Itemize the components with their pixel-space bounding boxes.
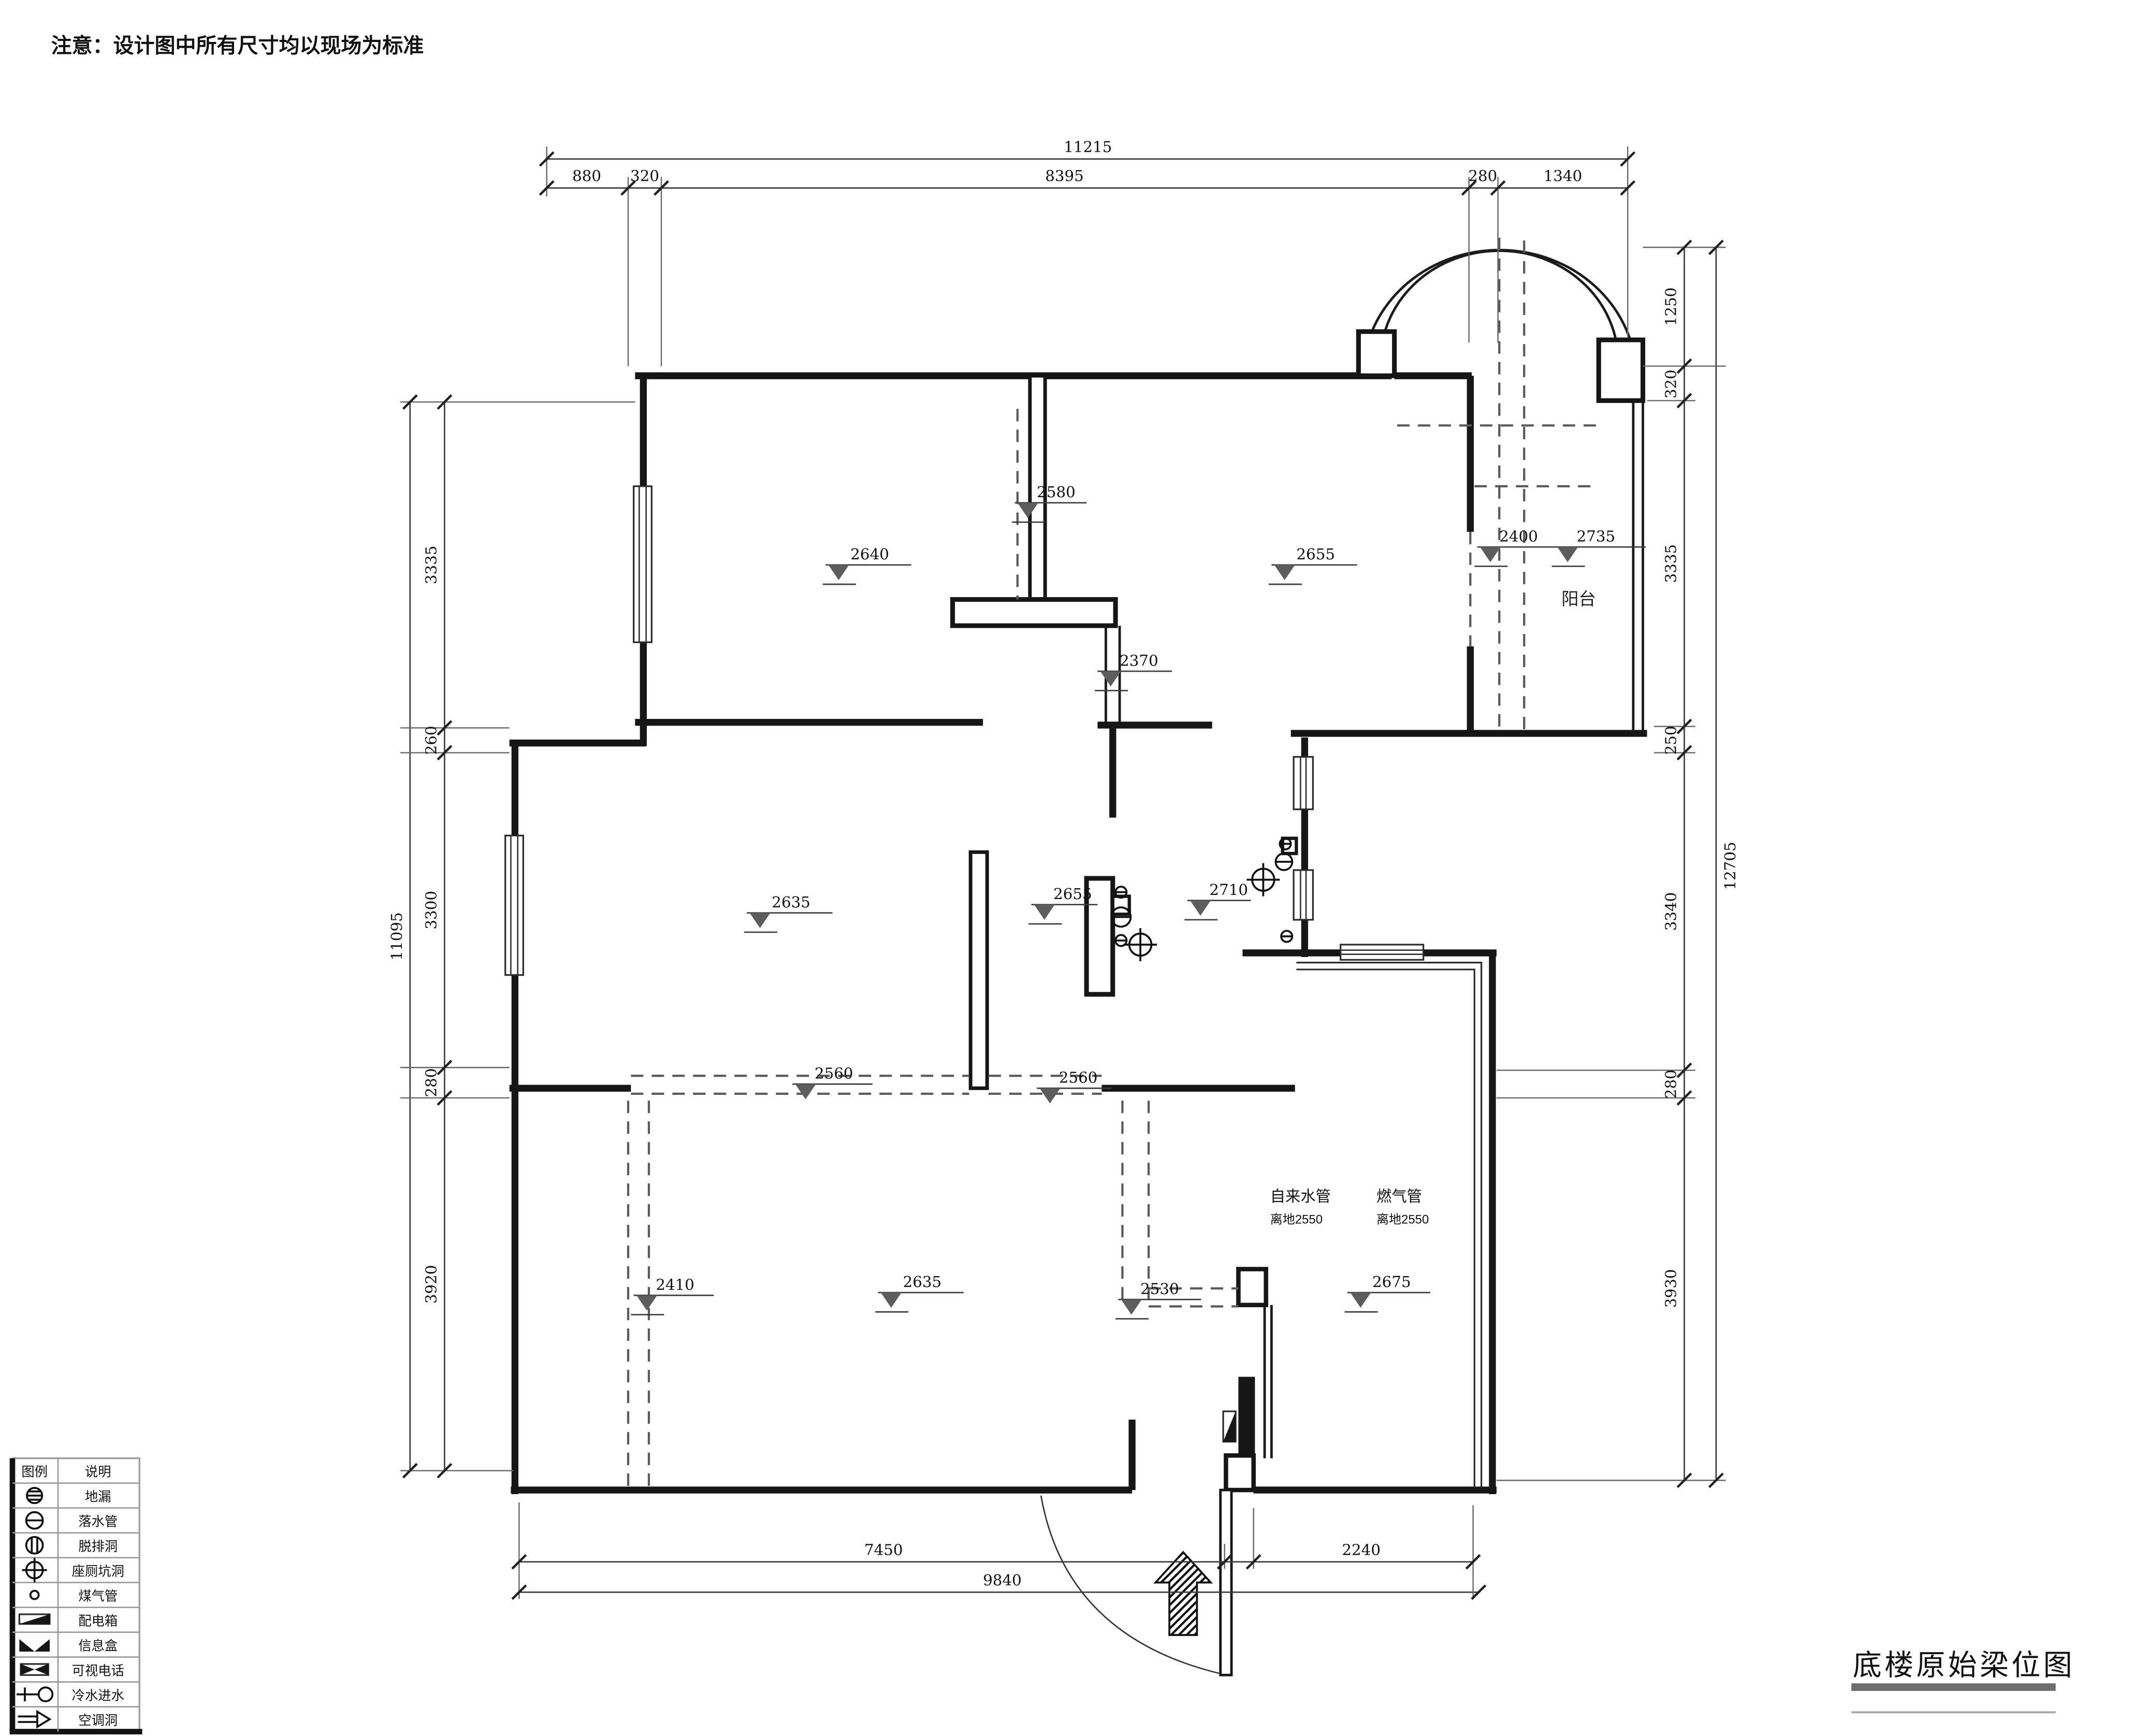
- dim-label: 320: [1662, 370, 1680, 399]
- dashed-lines: [628, 238, 1599, 1490]
- svg-text:信息盒: 信息盒: [78, 1639, 118, 1653]
- dim-label: 1340: [1544, 167, 1583, 185]
- dim-label: 3335: [1662, 544, 1680, 583]
- elevation-marker: 2735: [1552, 527, 1646, 566]
- floor-plan-canvas: 注意：设计图中所有尺寸均以现场为标准: [0, 0, 2133, 1736]
- water-pipe-label: 自来水管: [1270, 1188, 1331, 1205]
- elevation-value: 2640: [850, 545, 889, 563]
- dim-label: 280: [1468, 167, 1497, 185]
- dim-label: 8395: [1045, 167, 1084, 185]
- toilet-pit-icon: [1246, 863, 1280, 896]
- elevation-marker: 2560: [1037, 1069, 1111, 1104]
- dim-label: 1250: [1662, 287, 1680, 326]
- dim-label: 260: [422, 726, 440, 755]
- svg-text:空调洞: 空调洞: [78, 1713, 118, 1728]
- svg-text:冷水进水: 冷水进水: [72, 1688, 124, 1703]
- elevation-value: 2655: [1053, 885, 1092, 903]
- elevation-value: 2635: [903, 1273, 942, 1291]
- svg-text:可视电话: 可视电话: [72, 1663, 124, 1678]
- balcony-label: 阳台: [1561, 590, 1596, 609]
- dim-label: 11095: [388, 912, 405, 960]
- dim-label: 2240: [1342, 1541, 1381, 1558]
- elevation-value: 2580: [1037, 483, 1076, 501]
- svg-text:落水管: 落水管: [78, 1514, 118, 1529]
- entry-arrow-icon: [1155, 1552, 1211, 1635]
- dim-label: 3340: [1662, 892, 1680, 931]
- dim-label: 280: [1662, 1069, 1680, 1098]
- elevation-marker: 2635: [875, 1273, 964, 1312]
- elevation-marker: 2635: [744, 893, 833, 932]
- drawing-title: 底楼原始梁位图: [1853, 1648, 2075, 1681]
- elevation-value: 2655: [1296, 545, 1335, 563]
- window-bath-upper: [1294, 757, 1313, 809]
- elevation-value: 2400: [1499, 527, 1538, 545]
- dim-label: 320: [630, 167, 659, 185]
- elevation-marker: 2580: [1012, 483, 1086, 522]
- downpipe-icon: [1275, 853, 1292, 870]
- water-pipe-height: 离地2550: [1270, 1213, 1323, 1227]
- legend-header-symbol: 图例: [21, 1465, 48, 1479]
- elevation-marker: 2640: [823, 545, 911, 584]
- elevation-value: 2560: [1059, 1069, 1098, 1087]
- dim-label: 11215: [1064, 138, 1112, 156]
- svg-text:煤气管: 煤气管: [78, 1589, 118, 1603]
- drawing-sheet: 注意：设计图中所有尺寸均以现场为标准: [0, 0, 2133, 1736]
- dim-label: 3920: [422, 1265, 440, 1304]
- elevation-value: 2560: [815, 1065, 853, 1082]
- elevation-value: 2370: [1120, 652, 1158, 669]
- dim-label: 12705: [1721, 842, 1739, 890]
- downpipe-icon: [1281, 931, 1292, 942]
- dim-label: 9840: [983, 1571, 1022, 1589]
- window-kitchen: [1341, 945, 1424, 960]
- plan-symbols: [1111, 838, 1292, 1635]
- elevation-marker: 2655: [1269, 545, 1357, 584]
- elevation-marker: 2410: [631, 1276, 714, 1314]
- window-upper-left: [634, 486, 652, 642]
- elevation-value: 2675: [1372, 1273, 1411, 1291]
- elevation-value: 2710: [1209, 881, 1248, 899]
- dim-bottom: 7450 2240 9840: [512, 1502, 1486, 1599]
- distribution-box-icon: [1223, 1411, 1236, 1442]
- sheet-note: 注意：设计图中所有尺寸均以现场为标准: [51, 35, 424, 57]
- elevation-marker: 2675: [1345, 1273, 1430, 1312]
- walls: [510, 250, 1647, 1675]
- window-bath-lower: [1294, 870, 1313, 920]
- elevation-value: 2635: [772, 893, 810, 911]
- dim-right: 1250 320 3335 250 3340 280 3930 12705: [1497, 240, 1739, 1487]
- elevation-value: 2410: [656, 1276, 694, 1293]
- downpipe-icon: [1115, 935, 1126, 946]
- dim-label: 3930: [1662, 1269, 1680, 1308]
- elevation-value: 2735: [1577, 527, 1616, 545]
- svg-text:座厕坑洞: 座厕坑洞: [72, 1564, 124, 1579]
- legend-header-desc: 说明: [85, 1465, 111, 1479]
- elevation-marker: 2530: [1115, 1280, 1201, 1319]
- dim-label: 3335: [422, 546, 440, 585]
- title-underline: [1851, 1683, 2056, 1691]
- gas-pipe-label: 燃气管: [1376, 1188, 1422, 1205]
- toilet-pit-icon: [1124, 928, 1157, 961]
- dim-label: 250: [1662, 726, 1680, 755]
- elevation-marker: 2710: [1184, 881, 1251, 920]
- svg-text:地漏: 地漏: [85, 1489, 111, 1504]
- svg-text:配电箱: 配电箱: [78, 1614, 118, 1628]
- dim-label: 3300: [422, 891, 440, 930]
- dim-label: 280: [422, 1068, 440, 1097]
- plan-texts: 阳台 自来水管 离地2550 燃气管 离地2550: [1270, 590, 1596, 1226]
- legend-table: 图例 说明 地漏 落水管 脱排洞 座厕坑洞 煤气管 配电箱 信息盒: [10, 1458, 142, 1732]
- window-middle-left: [505, 835, 524, 975]
- title-block: 底楼原始梁位图: [1851, 1648, 2075, 1712]
- svg-text:脱排洞: 脱排洞: [78, 1539, 118, 1554]
- gas-pipe-height: 离地2550: [1376, 1213, 1429, 1227]
- dim-label: 880: [572, 167, 601, 185]
- elevation-marker: 2400: [1474, 527, 1555, 566]
- elevation-value: 2530: [1140, 1280, 1179, 1297]
- dim-label: 7450: [864, 1541, 903, 1558]
